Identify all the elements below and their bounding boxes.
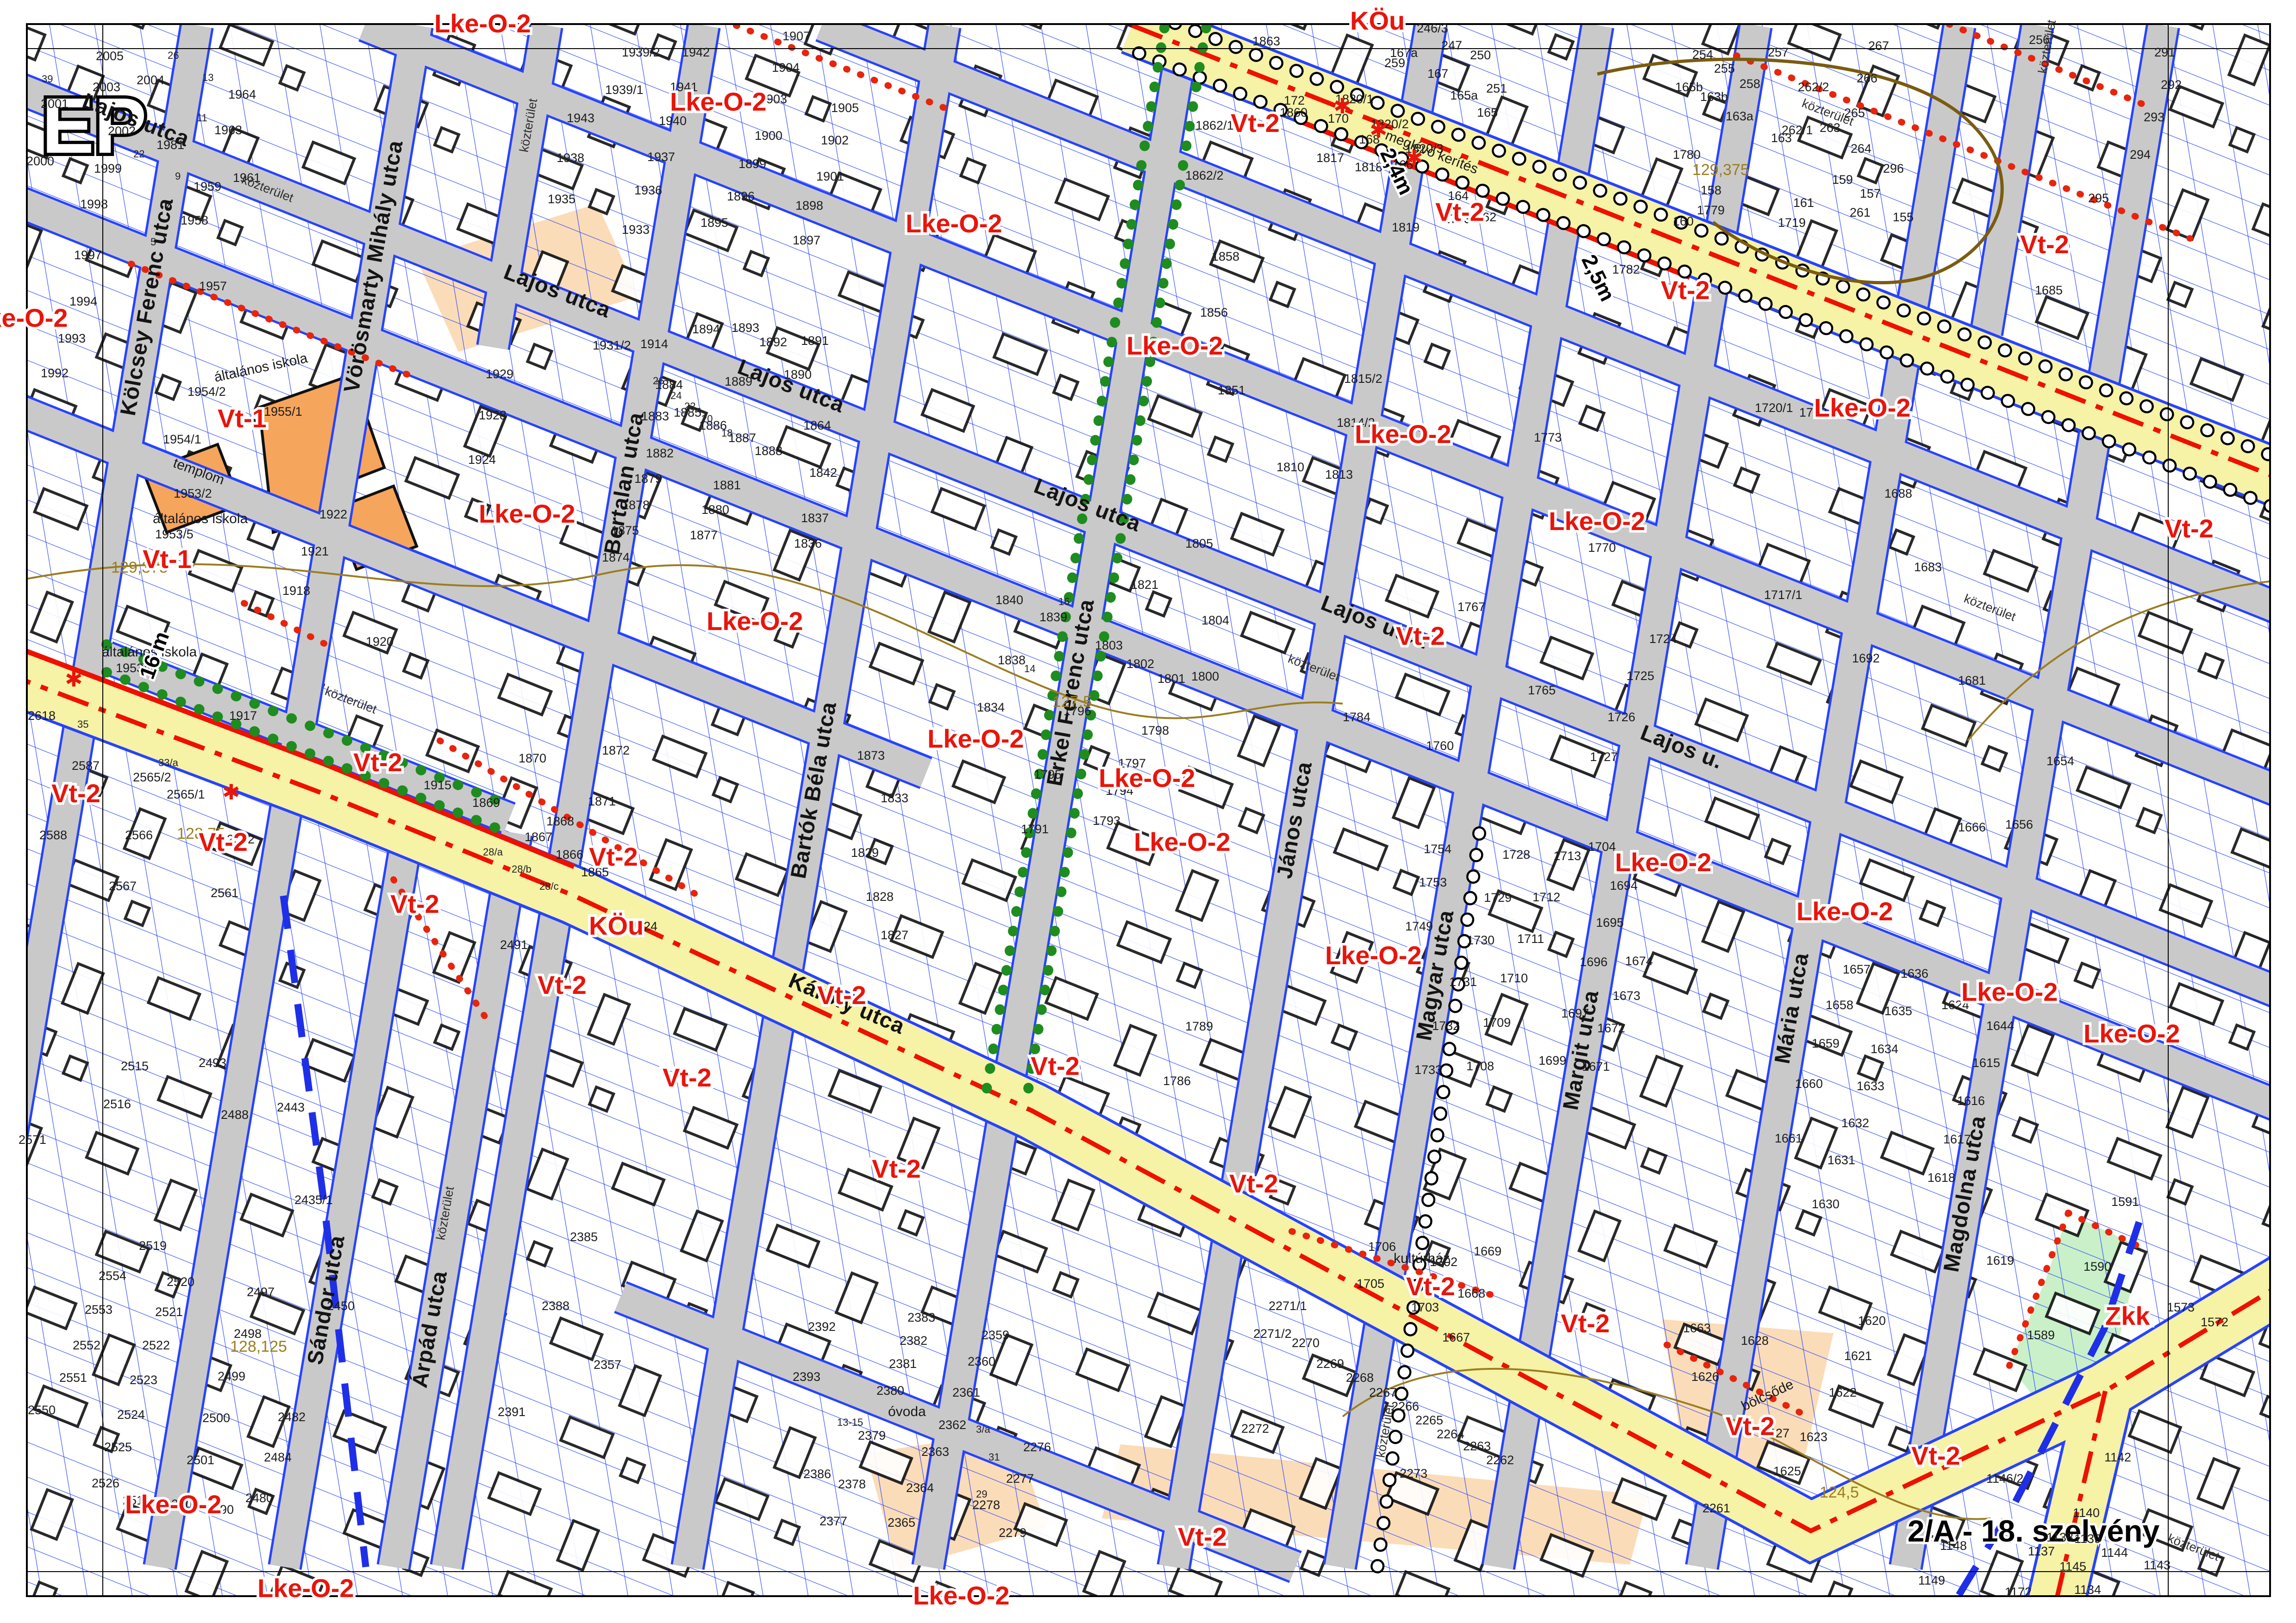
parcel-number: 2550: [28, 1403, 56, 1417]
parcel-number: 1725: [1627, 669, 1654, 683]
parcel-number: 1936: [634, 183, 662, 197]
zone-code-label: Lke-O-2: [1961, 977, 2058, 1006]
parcel-number: 158: [1701, 183, 1721, 197]
parcel-number: 1879: [634, 472, 662, 486]
house-number: 29: [976, 1488, 987, 1500]
parcel-number: 2499: [218, 1369, 245, 1383]
parcel-number: 1905: [831, 101, 859, 115]
parcel-number: 2268: [1346, 1371, 1374, 1385]
zone-code-label: Vt-2: [2020, 230, 2069, 259]
parcel-number: 267: [1868, 39, 1889, 53]
parcel-number: 1663: [1683, 1321, 1711, 1335]
parcel-number: 1760: [1426, 739, 1454, 753]
parcel-number: 2276: [1023, 1440, 1051, 1454]
parcel-number: 1915: [424, 778, 451, 792]
parcel-number: 1148: [1940, 1539, 1967, 1553]
parcel-number: 1873: [857, 749, 885, 762]
parcel-number: 1139: [2074, 1532, 2101, 1546]
survey-star-icon: ✱: [1370, 118, 1388, 142]
parcel-number: 1921: [301, 544, 329, 558]
parcel-number: 1622: [1829, 1386, 1857, 1399]
parcel-number: 1623: [1800, 1430, 1827, 1444]
parcel-number: 1705: [1357, 1277, 1384, 1291]
parcel-number: 1869: [472, 796, 500, 810]
parcel-number: 1706: [1368, 1240, 1396, 1254]
parcel-number: 1668: [1458, 1286, 1485, 1300]
zone-code-label: Vt-2: [1178, 1522, 1227, 1551]
parcel-number: 1630: [1812, 1197, 1839, 1211]
parcel-number: 2553: [85, 1303, 113, 1317]
parcel-number: 1661: [1775, 1131, 1802, 1145]
parcel-number: 2359: [982, 1328, 1009, 1342]
parcel-number: 1753: [1419, 875, 1447, 889]
parcel-number: 1784: [1343, 710, 1370, 724]
zone-code-label: Vt-2: [872, 1154, 921, 1183]
parcel-number: 1902: [821, 133, 849, 147]
parcel-number: 1900: [755, 129, 782, 143]
parcel-number: 1858: [1212, 250, 1239, 263]
zone-code-label: Vt-2: [1229, 1169, 1278, 1198]
survey-star-icon: ✱: [1405, 146, 1423, 170]
parcel-number: 1729: [1484, 891, 1512, 905]
parcel-number: 1727: [1590, 750, 1618, 764]
parcel-number: 1634: [1871, 1042, 1898, 1056]
parcel-number: 1994: [69, 294, 97, 308]
parcel-number: 167a: [1390, 46, 1418, 60]
parcel-number: 1872: [602, 743, 630, 757]
parcel-number: 1656: [2005, 818, 2033, 831]
parcel-number: 2278: [972, 1498, 1000, 1512]
parcel-number: 1695: [1596, 916, 1624, 930]
parcel-number: 1959: [194, 180, 221, 194]
parcel-number: 1589: [2027, 1328, 2055, 1342]
parcel-number: 1620: [1858, 1314, 1886, 1328]
parcel-number: 1590: [2083, 1260, 2111, 1273]
parcel-number: 1888: [755, 444, 782, 458]
house-number: 26: [168, 50, 179, 61]
parcel-number: 295: [2088, 191, 2109, 205]
parcel-number: 1957: [199, 279, 227, 293]
parcel-number: 165: [1477, 106, 1498, 119]
zone-code-label: Vt-2: [1911, 1441, 1960, 1470]
parcel-number: 163b: [1700, 90, 1728, 104]
zone-code-label: Vt-2: [51, 779, 100, 808]
parcel-number: 294: [2130, 148, 2151, 162]
zone-code-label: Zkk: [2105, 1301, 2150, 1330]
parcel-number: 2561: [211, 886, 238, 900]
parcel-number: 1993: [58, 331, 86, 345]
parcel-number: 1674: [1625, 954, 1653, 968]
parcel-number: 1793: [1093, 814, 1120, 828]
parcel-number: 1731: [1449, 975, 1477, 989]
parcel-number: 1804: [1201, 613, 1229, 627]
parcel-number: 2377: [820, 1514, 847, 1528]
house-number: 24: [670, 390, 682, 401]
parcel-number: 1140: [2073, 1506, 2100, 1520]
parcel-number: 1669: [1474, 1244, 1501, 1258]
parcel-number: 1833: [881, 791, 908, 805]
parcel-number: 2526: [92, 1476, 119, 1490]
zone-code-label: Lke-O-2: [1134, 827, 1231, 856]
parcel-number: 2524: [117, 1408, 145, 1422]
parcel-number: 2271/1: [1269, 1299, 1307, 1313]
parcel-number: 1633: [1857, 1079, 1884, 1093]
parcel-number: 161: [1793, 196, 1814, 210]
parcel-number: 2357: [594, 1358, 621, 1372]
house-number: 11: [197, 112, 207, 124]
parcel-number: 2566: [125, 828, 153, 842]
zone-code-label: Vt-2: [1726, 1411, 1775, 1441]
parcel-number: 1802: [1126, 657, 1154, 671]
parcel-number: 1924: [468, 453, 496, 467]
parcel-number: 2519: [139, 1239, 167, 1253]
parcel-number: 1803: [1095, 638, 1123, 652]
parcel-number: 2270: [1292, 1336, 1320, 1350]
parcel-number: 2392: [808, 1320, 836, 1334]
parcel-number: 2500: [202, 1411, 230, 1425]
parcel-number: 1838: [998, 653, 1026, 667]
parcel-number: 1142: [2104, 1450, 2131, 1464]
parcel-number: 1733: [1414, 1063, 1442, 1077]
zone-code-label: Lke-O-2: [125, 1490, 222, 1519]
measurement-label: 127,5: [1052, 693, 1092, 711]
zone-code-label: Lke-O-2: [0, 303, 68, 332]
parcel-number: 2587: [72, 759, 100, 773]
parcel-number: 1920: [366, 635, 394, 649]
zone-code-label: Vt-2: [199, 827, 248, 856]
zone-code-label: Lke-O-2: [1814, 393, 1911, 422]
parcel-number: 1818: [1355, 160, 1383, 174]
parcel-number: 2269: [1316, 1357, 1344, 1371]
parcel-number: 1728: [1502, 848, 1530, 861]
parcel-number: 1864: [803, 418, 831, 432]
parcel-number: 1842: [809, 466, 837, 480]
parcel-number: 1860: [1280, 106, 1308, 119]
house-number: 22: [133, 148, 144, 160]
zone-code-label: Vt-1: [218, 404, 267, 433]
house-number: 35: [77, 718, 88, 730]
house-number: 22: [684, 400, 695, 412]
parcel-number: 1621: [1844, 1349, 1872, 1363]
parcel-number: 1917: [229, 709, 257, 723]
parcel-number: 258: [1739, 77, 1760, 91]
parcel-number: 2552: [73, 1338, 100, 1352]
zone-code-label: Vt-2: [390, 889, 439, 918]
parcel-number: 1867: [525, 830, 552, 844]
parcel-number: 2382: [900, 1334, 927, 1348]
parcel-number: 1625: [1773, 1464, 1801, 1478]
parcel-number: 1685: [2035, 283, 2063, 297]
parcel-number: 2618: [28, 709, 56, 723]
parcel-number: 2522: [142, 1338, 170, 1352]
parcel-number: 165a: [1450, 88, 1478, 102]
parcel-number: 2516: [103, 1097, 131, 1111]
parcel-number: 1891: [801, 334, 829, 348]
parcel-number: 1894: [692, 322, 720, 336]
parcel-number: 2520: [167, 1275, 194, 1289]
parcel-number: 1770: [1588, 541, 1616, 555]
parcel-number: 1893: [732, 321, 759, 335]
parcel-number: 1837: [801, 511, 829, 525]
house-number: 14: [1024, 663, 1035, 674]
parcel-number: 2565/1: [167, 787, 205, 801]
parcel-number: 159: [1832, 173, 1853, 187]
parcel-number: 1839: [1039, 610, 1067, 624]
parcel-number: 2378: [838, 1477, 866, 1491]
parcel-number: 1815/2: [1344, 372, 1383, 386]
parcel-number: 1918: [282, 584, 310, 598]
parcel-number: 2482: [278, 1410, 306, 1424]
parcel-number: 1922: [319, 507, 347, 521]
house-number: 31: [988, 1451, 1000, 1463]
parcel-number: 1138: [2046, 1530, 2073, 1544]
parcel-number: 1866: [556, 848, 583, 861]
parcel-number: 2362: [938, 1418, 966, 1432]
parcel-number: 2005: [96, 49, 124, 63]
parcel-number: 1660: [1795, 1077, 1823, 1091]
parcel-number: 1572: [2201, 1315, 2228, 1329]
parcel-number: 1137: [2028, 1544, 2055, 1558]
parcel-number: 1868: [546, 814, 574, 828]
measurement-label: 124,5: [1820, 1484, 1859, 1501]
parcel-number: 1713: [1553, 849, 1581, 863]
parcel-number: 266: [1857, 71, 1877, 85]
parcel-number: 1817: [1316, 151, 1344, 165]
parcel-number: 2567: [109, 879, 137, 893]
parcel-number: 1644: [1986, 1019, 2014, 1033]
parcel-number: 296: [1883, 162, 1904, 175]
parcel-number: 254: [1692, 48, 1713, 62]
parcel-number: 1801: [1157, 672, 1185, 686]
zone-code-label: Vt-2: [1435, 197, 1484, 226]
landmark-label: óvoda: [888, 1404, 926, 1419]
parcel-number: 1144: [2101, 1546, 2128, 1560]
parcel-number: 1958: [181, 213, 208, 227]
house-number: 13: [202, 72, 213, 83]
parcel-number: 1681: [1958, 674, 1986, 687]
parcel-number: 1896: [727, 189, 755, 203]
parcel-number: 1134: [2074, 1583, 2101, 1597]
measurement-label: 128,125: [230, 1338, 287, 1355]
parcel-number: 1666: [1958, 820, 1986, 834]
parcel-number: 2361: [952, 1386, 980, 1399]
parcel-number: 1726: [1608, 710, 1635, 724]
parcel-number: 1724: [1649, 632, 1677, 646]
parcel-number: 163a: [1726, 109, 1754, 123]
zone-code-label: Lke-O-2: [2083, 1019, 2180, 1048]
house-number: 28/a: [483, 846, 503, 858]
parcel-number: 2525: [104, 1440, 132, 1454]
parcel-number: 1821: [1131, 578, 1158, 592]
parcel-number: 1834: [977, 700, 1005, 714]
parcel-number: 292: [2161, 78, 2182, 92]
zone-code-label: Vt-2: [2165, 514, 2214, 543]
parcel-number: 1145: [2059, 1560, 2086, 1573]
parcel-number: 1749: [1405, 919, 1433, 933]
parcel-number: 1805: [1185, 537, 1213, 550]
parcel-number: 1882: [646, 446, 674, 460]
parcel-number: 2261: [1702, 1501, 1730, 1515]
parcel-number: 172: [1284, 94, 1305, 107]
parcel-number: 2365: [888, 1516, 915, 1529]
parcel-number: 163: [1771, 131, 1792, 145]
parcel-number: 1931/2: [593, 338, 631, 352]
parcel-number: 2279: [999, 1526, 1026, 1540]
parcel-number: 1877: [690, 528, 718, 542]
parcel-number: 1851: [1218, 383, 1245, 397]
parcel-number: 1892: [759, 335, 787, 349]
house-number: 28/c: [539, 880, 559, 892]
parcel-number: 1658: [1826, 998, 1853, 1012]
parcel-number: 2379: [858, 1429, 886, 1442]
parcel-number: 261: [1850, 206, 1871, 219]
parcel-number: 2554: [99, 1269, 126, 1283]
zone-code-label: Lke-O-2: [913, 1581, 1010, 1610]
parcel-number: 1998: [80, 197, 108, 211]
zone-code-label: Lke-O-2: [479, 499, 576, 528]
landmark-label: általános iskola: [153, 511, 248, 526]
parcel-number: 2385: [570, 1230, 598, 1244]
zone-code-label: Lke-O-2: [1355, 419, 1451, 449]
zone-code-label: Lke-O-2: [707, 606, 803, 636]
house-number: 26: [653, 375, 664, 387]
zone-code-label: Vt-2: [1031, 1051, 1080, 1080]
parcel-number: 1943: [567, 111, 594, 125]
parcel-number: 1954/1: [163, 432, 201, 446]
parcel-number: 1719: [1778, 216, 1806, 230]
zone-code-label: KÖu: [589, 911, 644, 940]
parcel-number: 1699: [1539, 1054, 1566, 1067]
zone-code-label: Vt-2: [663, 1063, 712, 1092]
zone-code-label: Lke-O-2: [1099, 763, 1195, 793]
parcel-number: 1898: [795, 199, 823, 212]
zoning-map-canvas[interactable]: EP 2/A - 18. szelvény 200520042003200120…: [0, 0, 2296, 1623]
parcel-number: 1901: [816, 169, 844, 183]
zone-code-label: Vt-2: [1231, 108, 1280, 137]
zone-code-label: Lke-O-2: [927, 724, 1024, 753]
parcel-number: 2265: [1415, 1413, 1443, 1427]
parcel-number: 1862/2: [1185, 169, 1224, 182]
parcel-number: 2277: [1006, 1472, 1034, 1486]
parcel-number: 1692: [1852, 651, 1880, 665]
parcel-number: 1710: [1500, 971, 1528, 985]
parcel-number: 1654: [2046, 754, 2074, 768]
parcel-number: 1616: [1957, 1094, 1985, 1108]
parcel-number: 1711: [1517, 932, 1544, 946]
parcel-number: 1953/2: [174, 487, 212, 500]
parcel-number: 2262: [1486, 1453, 1514, 1467]
parcel-number: 1149: [1918, 1573, 1945, 1587]
parcel-number: 2493: [199, 1056, 226, 1070]
parcel-number: 1635: [1884, 1004, 1912, 1018]
parcel-number: 1619: [1986, 1254, 2014, 1267]
parcel-number: 1914: [640, 337, 668, 351]
zone-code-label: Vt-2: [589, 842, 638, 871]
parcel-number: 291: [2154, 45, 2175, 59]
parcel-number: 1871: [588, 794, 616, 808]
parcel-number: 2571: [19, 1133, 46, 1147]
parcel-number: 2497: [247, 1285, 275, 1299]
parcel-number: 1953/5: [155, 527, 194, 541]
parcel-number: 1720/1: [1755, 401, 1793, 415]
parcel-number: 1928: [479, 408, 507, 422]
parcel-number: 2363: [921, 1445, 949, 1459]
parcel-number: 167: [1427, 67, 1448, 81]
parcel-number: 1955/1: [264, 405, 302, 418]
parcel-number: 2264: [1437, 1427, 1464, 1441]
house-number: 13-15: [837, 1417, 863, 1428]
parcel-number: 2272: [1241, 1422, 1269, 1436]
parcel-number: 1704: [1588, 840, 1616, 854]
parcel-number: 2364: [906, 1481, 934, 1495]
parcel-number: 1935: [548, 192, 576, 206]
parcel-number: 1992: [41, 366, 69, 380]
zone-code-label: Lke-O-2: [1126, 331, 1223, 360]
parcel-number: 157: [1860, 187, 1881, 200]
parcel-number: 1954/2: [188, 385, 226, 399]
parcel-number: 251: [1486, 81, 1507, 95]
parcel-number: 2393: [793, 1370, 820, 1384]
parcel-number: 1800: [1191, 669, 1219, 683]
parcel-number: 2391: [498, 1405, 526, 1419]
parcel-number: 2000: [26, 154, 54, 168]
parcel-number: 247: [1441, 38, 1462, 52]
parcel-number: 2484: [264, 1450, 292, 1464]
parcel-number: 2263: [1463, 1439, 1491, 1453]
zone-code-label: Vt-2: [1661, 275, 1710, 305]
measurement-label: 129,375: [1692, 161, 1749, 179]
house-number: 33/a: [158, 757, 179, 768]
zone-code-label: Vt-2: [817, 980, 866, 1010]
parcel-number: 2273: [1400, 1467, 1427, 1480]
parcel-number: 2383: [907, 1311, 935, 1324]
parcel-number: 1999: [94, 162, 122, 175]
survey-star-icon: ✱: [65, 667, 83, 691]
parcel-number: 2001: [41, 97, 69, 111]
parcel-number: 262/2: [1798, 80, 1829, 94]
parcel-number: 1636: [1901, 967, 1928, 980]
parcel-number: 264: [1851, 142, 1871, 156]
parcel-number: 1897: [793, 233, 820, 247]
parcel-number: 160: [1673, 214, 1694, 228]
parcel-number: 2588: [39, 828, 67, 842]
parcel-number: 1573: [2167, 1300, 2195, 1314]
zone-code-label: Vt-2: [538, 970, 587, 999]
parcel-number: 1862/1: [1195, 119, 1234, 132]
parcel-number: 2488: [221, 1108, 249, 1122]
parcel-number: 1964: [228, 87, 256, 101]
zone-code-label: Vt-1: [143, 544, 192, 574]
parcel-number: 1631: [1827, 1153, 1855, 1167]
parcel-number: 2267: [1369, 1386, 1397, 1399]
parcel-number: 1172: [2005, 1585, 2032, 1599]
zone-code-label: Lke-O-2: [1325, 941, 1422, 970]
parcel-number: 293: [2144, 110, 2165, 124]
parcel-number: 1626: [1691, 1370, 1719, 1384]
zone-code-label: Lke-O-2: [1615, 848, 1712, 877]
parcel-number: 1767: [1458, 600, 1485, 614]
map-sheet: EP 2/A - 18. szelvény 200520042003200120…: [0, 0, 2296, 1623]
parcel-number: 1789: [1185, 1019, 1213, 1033]
parcel-number: 1694: [1610, 879, 1638, 893]
parcel-number: 1628: [1741, 1334, 1769, 1348]
parcel-number: 2443: [277, 1100, 305, 1114]
parcel-number: 1688: [1884, 487, 1912, 500]
parcel-number: 1712: [1533, 890, 1560, 904]
parcel-number: 2386: [803, 1467, 831, 1481]
parcel-number: 1618: [1927, 1171, 1955, 1185]
parcel-number: 2551: [59, 1371, 87, 1385]
